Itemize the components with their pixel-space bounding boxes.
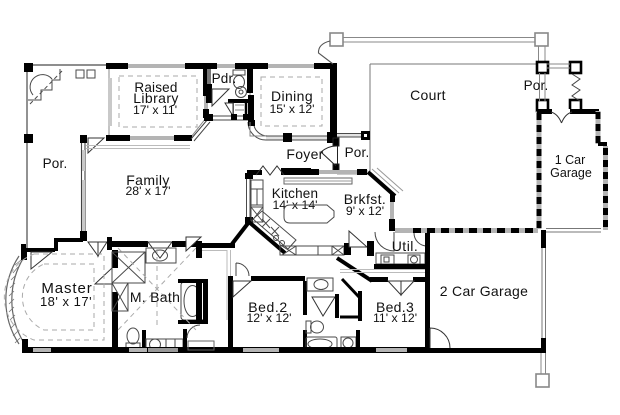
svg-text:1 Car: 1 Car (555, 153, 586, 167)
svg-text:15' x 12': 15' x 12' (269, 102, 314, 116)
svg-text:17' x 11': 17' x 11' (133, 103, 177, 117)
svg-text:Garage: Garage (550, 166, 592, 180)
svg-text:28' x 17': 28' x 17' (125, 184, 170, 198)
svg-text:11' x 12': 11' x 12' (373, 311, 417, 325)
svg-text:Por.: Por. (524, 78, 549, 93)
svg-text:18' x 17': 18' x 17' (40, 294, 92, 309)
svg-text:9' x 12': 9' x 12' (346, 204, 384, 218)
svg-text:Por.: Por. (345, 145, 370, 160)
svg-text:2 Car Garage: 2 Car Garage (440, 283, 528, 299)
svg-text:Util.: Util. (392, 238, 419, 254)
svg-text:Foyer: Foyer (286, 146, 323, 162)
svg-text:Por.: Por. (43, 156, 68, 171)
svg-text:M. Bath: M. Bath (130, 289, 180, 305)
svg-text:Pdr.: Pdr. (212, 71, 237, 86)
svg-text:Court: Court (410, 87, 446, 103)
svg-text:12' x 12': 12' x 12' (246, 311, 291, 325)
